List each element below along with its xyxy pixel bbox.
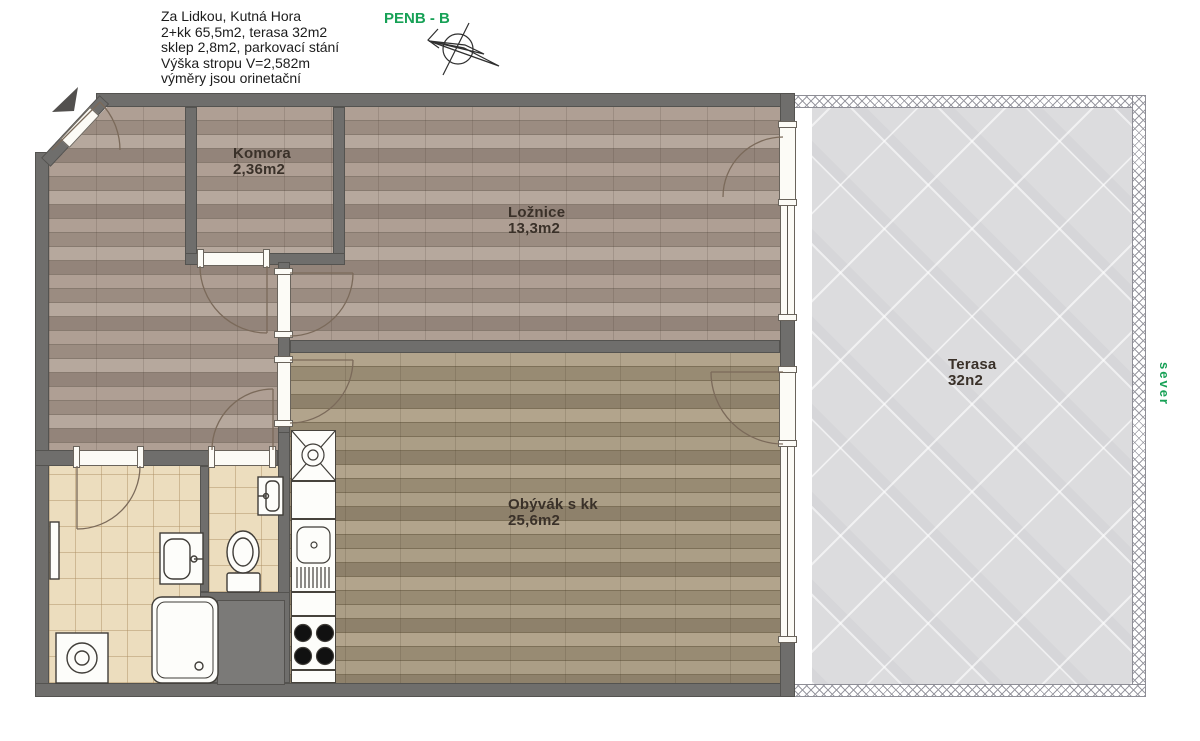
door-jamb <box>778 366 797 373</box>
wall-room-divider <box>290 340 780 353</box>
wall-hall-bath-b <box>140 450 212 466</box>
header-line-4: Výška stropu V=2,582m <box>161 56 339 72</box>
door-jamb <box>269 446 276 468</box>
wall-komora-bottom-b <box>265 253 345 265</box>
listing-header: Za Lidkou, Kutná Hora 2+kk 65,5m2, teras… <box>161 9 339 87</box>
door-jamb <box>208 446 215 468</box>
room-area: 2,36m2 <box>233 162 291 178</box>
kitchen-sink-unit <box>291 519 336 592</box>
window-bedroom-glass <box>787 203 788 318</box>
door-opening-living <box>277 360 291 423</box>
door-jamb <box>274 356 293 363</box>
kitchen-counter <box>291 670 336 683</box>
door-opening-terrace-bedroom <box>779 125 796 203</box>
door-opening-bathroom <box>77 450 140 466</box>
header-line-3: sklep 2,8m2, parkovací stání <box>161 40 339 56</box>
door-jamb <box>778 314 797 321</box>
terrace-edge-top <box>790 95 1146 108</box>
wc-floor <box>209 466 278 592</box>
room-label-komora: Komora 2,36m2 <box>233 146 291 178</box>
room-label-loznice: Ložnice 13,3m2 <box>508 205 565 237</box>
door-opening-bedroom <box>277 272 291 334</box>
door-jamb <box>274 268 293 275</box>
door-opening-komora <box>202 252 265 266</box>
header-line-2: 2+kk 65,5m2, terasa 32m2 <box>161 25 339 41</box>
room-name: Komora <box>233 146 291 162</box>
wall-hall-bath-a <box>35 450 77 466</box>
floor-plan: Za Lidkou, Kutná Hora 2+kk 65,5m2, teras… <box>0 0 1200 741</box>
terrace-edge-bottom <box>790 684 1146 697</box>
terrace-edge-right <box>1132 95 1146 697</box>
energy-label: PENB - B <box>384 10 450 27</box>
wall-bath-wc-partition <box>200 466 209 592</box>
kitchen-stove <box>291 616 336 670</box>
wall-top <box>96 93 795 107</box>
room-area: 13,3m2 <box>508 221 565 237</box>
north-label: sever <box>1157 362 1172 406</box>
terrace-floor <box>812 108 1132 684</box>
room-area: 25,6m2 <box>508 513 598 529</box>
kitchen-counter <box>291 592 336 616</box>
kitchen-counter <box>291 481 336 519</box>
window-living-glass <box>787 444 788 640</box>
wall-komora-left <box>185 107 197 265</box>
room-label-terasa: Terasa 32n2 <box>948 357 996 389</box>
door-jamb <box>274 420 293 427</box>
wall-bottom <box>35 683 795 697</box>
room-area: 32n2 <box>948 373 996 389</box>
door-jamb <box>778 440 797 447</box>
door-jamb <box>274 331 293 338</box>
header-line-1: Za Lidkou, Kutná Hora <box>161 9 339 25</box>
bathroom-floor <box>49 466 200 683</box>
compass-icon <box>428 23 499 75</box>
door-jamb <box>263 249 270 268</box>
door-jamb <box>137 446 144 468</box>
door-jamb <box>778 199 797 206</box>
door-jamb <box>778 636 797 643</box>
shaft-inner <box>217 600 285 685</box>
room-label-obyvak: Obývák s kk 25,6m2 <box>508 497 598 529</box>
wall-left <box>35 152 49 697</box>
door-jamb <box>73 446 80 468</box>
door-opening-terrace-living <box>779 370 796 444</box>
kitchen-boiler <box>291 430 336 481</box>
door-opening-wc <box>212 450 273 466</box>
room-name: Terasa <box>948 357 996 373</box>
room-name: Ložnice <box>508 205 565 221</box>
wall-komora-right <box>333 107 345 265</box>
room-name: Obývák s kk <box>508 497 598 513</box>
door-jamb <box>197 249 204 268</box>
header-line-5: výměry jsou orinetační <box>161 71 339 87</box>
door-jamb <box>778 121 797 128</box>
